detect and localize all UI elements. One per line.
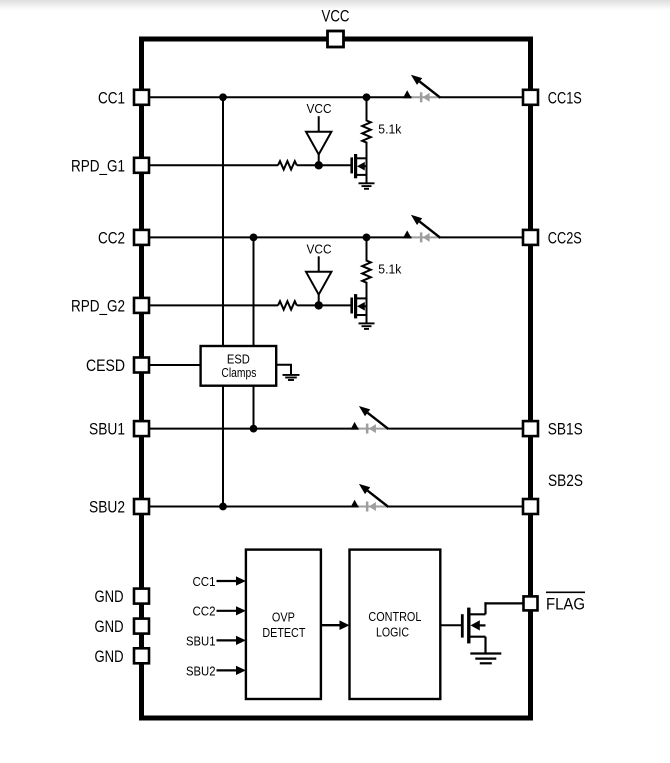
svg-text:5.1k: 5.1k (378, 121, 401, 136)
svg-text:CC2: CC2 (98, 229, 125, 247)
svg-text:GND: GND (95, 648, 124, 666)
svg-text:DETECT: DETECT (262, 625, 305, 640)
svg-text:CESD: CESD (86, 357, 125, 375)
svg-text:VCC: VCC (322, 8, 350, 26)
svg-text:RPD_G1: RPD_G1 (71, 157, 125, 175)
svg-text:5.1k: 5.1k (378, 261, 401, 276)
svg-text:GND: GND (95, 588, 124, 606)
svg-text:SB2S: SB2S (548, 472, 583, 490)
svg-text:LOGIC: LOGIC (376, 625, 409, 640)
svg-text:CONTROL: CONTROL (368, 609, 421, 624)
svg-text:GND: GND (95, 618, 124, 636)
svg-text:SB1S: SB1S (548, 421, 583, 439)
svg-text:SBU1: SBU1 (186, 633, 216, 648)
svg-text:CC1S: CC1S (548, 89, 582, 107)
svg-text:CC2S: CC2S (548, 229, 582, 247)
svg-text:OVP: OVP (272, 609, 295, 624)
svg-text:SBU2: SBU2 (186, 663, 216, 678)
svg-text:CC1: CC1 (193, 574, 216, 589)
svg-text:VCC: VCC (307, 101, 332, 116)
svg-text:RPD_G2: RPD_G2 (71, 297, 125, 315)
svg-text:FLAG: FLAG (546, 595, 585, 613)
svg-text:VCC: VCC (307, 241, 332, 256)
svg-text:SBU1: SBU1 (89, 421, 125, 439)
svg-text:SBU2: SBU2 (89, 499, 125, 517)
svg-text:CC2: CC2 (193, 604, 216, 619)
svg-text:Clamps: Clamps (221, 365, 256, 380)
svg-text:CC1: CC1 (98, 89, 125, 107)
